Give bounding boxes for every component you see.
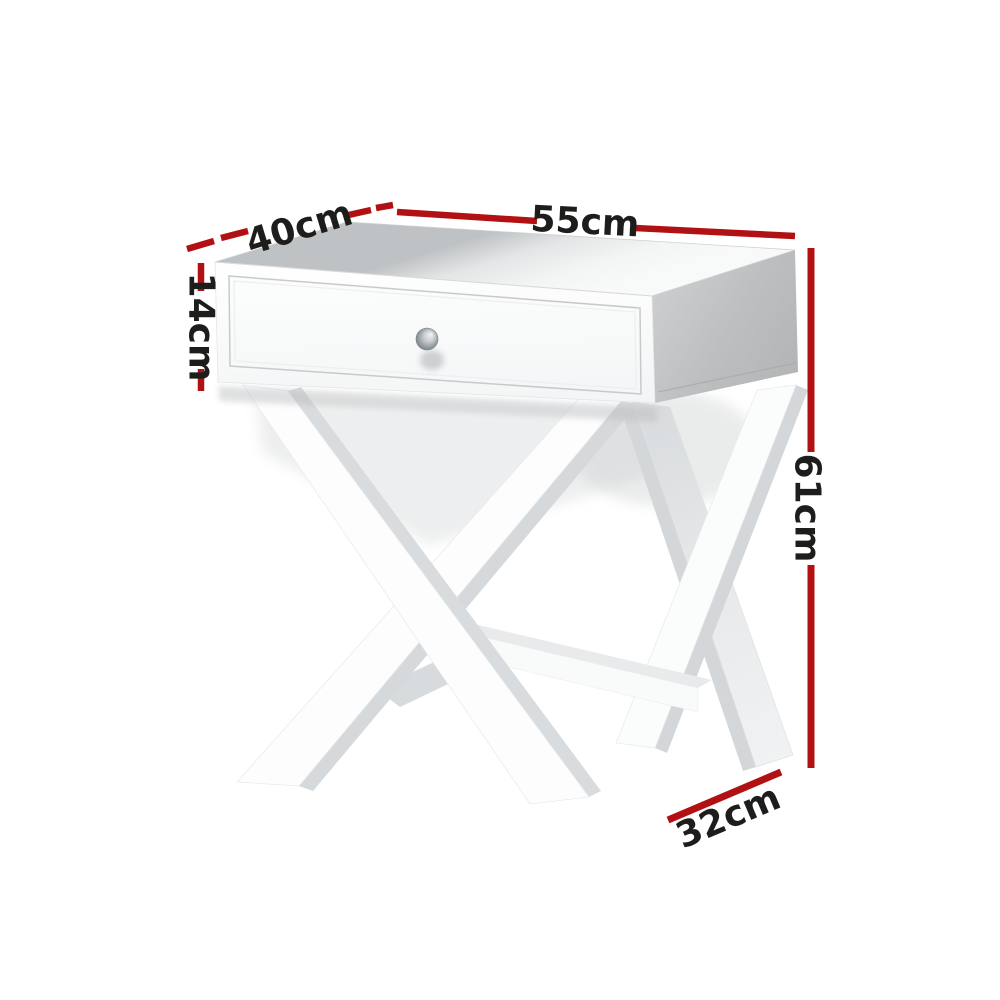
drawer-knob	[416, 328, 438, 350]
length-dim-line-left	[397, 212, 537, 221]
overall-height-dim-label: 61cm	[786, 454, 827, 563]
knob-shadow	[420, 350, 444, 370]
side-table-dimension-illustration: 40cm 55cm 14cm 61cm 32cm	[0, 0, 1000, 1000]
foot-depth-dim-label: 32cm	[670, 777, 786, 857]
depth-dim-dash-1	[187, 241, 214, 249]
product-dimension-diagram: 40cm 55cm 14cm 61cm 32cm	[0, 0, 1000, 1000]
length-dim-line-right	[634, 228, 795, 236]
length-dim-label: 55cm	[529, 199, 640, 246]
tabletop-height-dim-label: 14cm	[180, 273, 221, 382]
cabinet-box	[215, 222, 798, 404]
depth-dim-dash-4	[376, 205, 393, 208]
